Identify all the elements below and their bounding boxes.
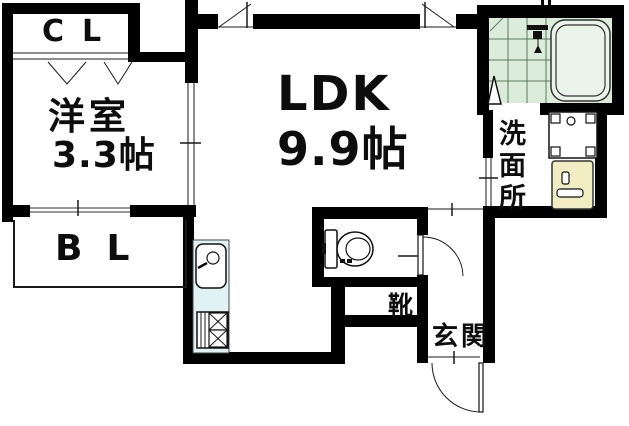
wall xyxy=(331,315,428,327)
wall xyxy=(312,207,428,219)
floor-plan: CL 洋室 3.3帖 LDK 9.9帖 BL 洗面所 靴 玄関 xyxy=(0,0,629,426)
wall xyxy=(183,217,194,364)
western-room-size: 3.3帖 xyxy=(52,138,156,174)
floor-plan-drawing xyxy=(0,0,629,426)
wall xyxy=(417,207,428,235)
shoe-cabinet-label: 靴 xyxy=(388,293,413,318)
balcony-window-icon xyxy=(30,200,130,216)
washing-machine-pan-icon xyxy=(549,112,597,158)
wall xyxy=(2,3,140,14)
washbasin-icon xyxy=(552,161,593,209)
wall xyxy=(2,3,13,222)
entrance-step-line xyxy=(428,203,483,216)
wall xyxy=(612,5,624,115)
western-room-name: 洋室 xyxy=(48,98,130,135)
kitchen-sink-icon xyxy=(196,244,226,288)
wall xyxy=(312,277,428,287)
kitchen xyxy=(193,240,229,353)
wall xyxy=(130,205,196,217)
top-wall-window-icon xyxy=(218,2,253,28)
wall xyxy=(183,352,345,364)
wall xyxy=(185,0,198,83)
washroom-label: 洗面所 xyxy=(496,119,523,215)
entrance-label: 玄関 xyxy=(432,324,490,350)
wall xyxy=(2,205,30,217)
bathtub-icon xyxy=(551,20,610,101)
bathroom xyxy=(488,18,612,104)
wall xyxy=(128,3,140,58)
entry-door-swing-icon xyxy=(428,351,483,412)
wall xyxy=(477,5,489,115)
vent-tick xyxy=(548,0,551,9)
wall xyxy=(483,110,493,158)
wall xyxy=(253,14,420,29)
gas-stove-icon xyxy=(197,312,228,348)
sliding-door-partition-icon xyxy=(180,82,201,205)
top-wall-window-icon xyxy=(420,2,456,28)
wall xyxy=(198,14,218,29)
vent-tick xyxy=(541,0,544,9)
ldk-size: 9.9帖 xyxy=(277,126,409,172)
ldk-name: LDK xyxy=(277,70,391,118)
toilet-door-swing-icon xyxy=(398,235,463,276)
closet-label: CL xyxy=(42,17,119,47)
toilet-icon xyxy=(322,230,373,268)
balcony-label: BL xyxy=(55,231,153,267)
closet-folding-doors-icon xyxy=(13,53,132,84)
